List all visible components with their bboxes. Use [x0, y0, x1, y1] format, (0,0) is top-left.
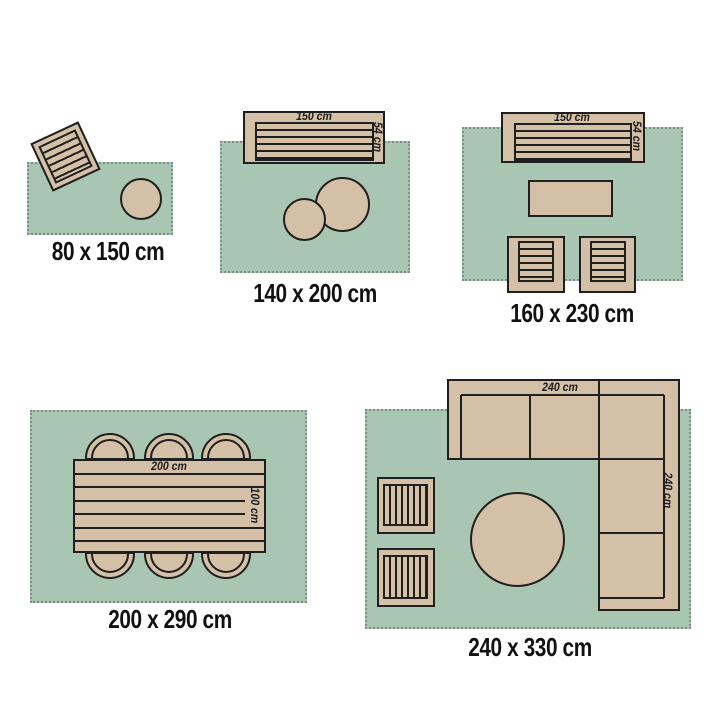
sofa-width-label: 240 cm — [542, 381, 578, 394]
side-table-slats — [38, 129, 92, 183]
round-coffee-table — [470, 492, 565, 587]
table-plank-line — [75, 513, 245, 515]
pouf — [120, 178, 162, 220]
bench-slats — [255, 122, 374, 161]
dining-table — [73, 459, 266, 553]
table-plank-line — [75, 473, 264, 475]
chair-arc — [150, 439, 188, 460]
armchair-left — [507, 236, 565, 293]
ottoman-slats — [383, 484, 428, 526]
ottoman — [377, 548, 435, 607]
table-depth-label: 100 cm — [248, 487, 261, 523]
sofa-depth-label: 240 cm — [661, 472, 674, 508]
table-plank-line — [75, 500, 245, 502]
armchair-slats — [518, 241, 554, 282]
rug-size-guide: 80 x 150 cm 150 cm 54 cm 140 x 200 cm 15… — [0, 0, 720, 720]
table-width-label: 200 cm — [151, 460, 187, 473]
ottoman-slats — [383, 555, 428, 599]
ottoman — [377, 477, 435, 534]
sectional-sofa — [447, 379, 680, 611]
armchair-slats — [590, 241, 626, 282]
table-plank-line — [75, 527, 264, 529]
bench-width-label: 150 cm — [296, 110, 332, 123]
size-label-140x200: 140 x 200 cm — [253, 280, 377, 306]
size-label-160x230: 160 x 230 cm — [510, 300, 634, 326]
table-plank-line — [75, 540, 264, 542]
chair-arc — [207, 552, 245, 573]
sectional-sofa-outline — [448, 380, 679, 610]
bench-slats — [514, 123, 632, 161]
bench-depth-label: 54 cm — [371, 122, 384, 152]
coffee-table-small — [283, 198, 326, 241]
bench-width-label: 150 cm — [554, 111, 590, 124]
table-plank-line — [75, 486, 264, 488]
size-label-80x150: 80 x 150 cm — [52, 238, 164, 264]
size-label-200x290: 200 x 290 cm — [108, 606, 232, 632]
bench-depth-label: 54 cm — [630, 121, 643, 151]
chair-arc — [91, 439, 129, 460]
armchair-right — [579, 236, 636, 293]
chair-arc — [91, 552, 129, 573]
size-label-240x330: 240 x 330 cm — [468, 634, 592, 660]
chair-arc — [150, 552, 188, 573]
chair-arc — [207, 439, 245, 460]
coffee-table — [528, 180, 613, 217]
